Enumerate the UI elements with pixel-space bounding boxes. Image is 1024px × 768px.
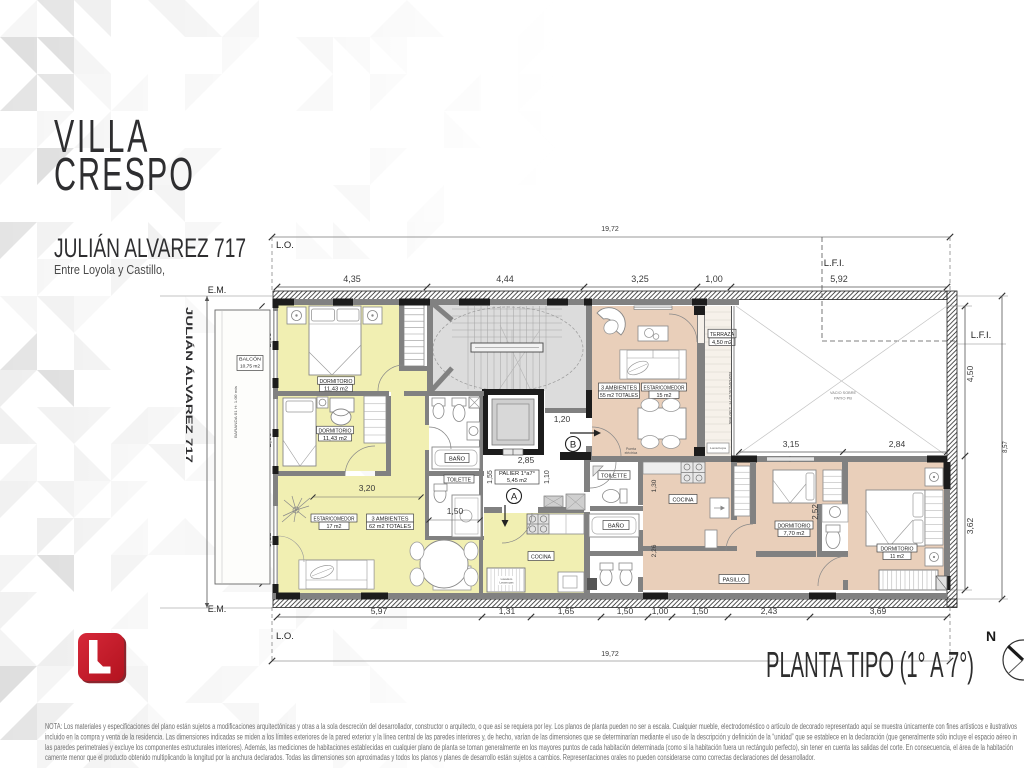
svg-text:DORMITORIO: DORMITORIO [319, 429, 352, 435]
svg-text:las paredes perimetrales y exc: las paredes perimetrales y excluye los c… [45, 743, 1013, 752]
svg-text:BALCÓN: BALCÓN [239, 357, 261, 362]
svg-text:COCINA: COCINA [673, 497, 695, 503]
svg-text:55 m2 TOTALES: 55 m2 TOTALES [600, 393, 639, 399]
svg-text:2,43: 2,43 [761, 606, 778, 616]
svg-text:1,50: 1,50 [692, 606, 709, 616]
svg-text:DORMITORIO: DORMITORIO [881, 547, 914, 553]
svg-text:10,75 m2: 10,75 m2 [240, 364, 261, 369]
svg-text:19,72: 19,72 [601, 651, 619, 658]
svg-text:B: B [570, 440, 576, 451]
svg-text:camente menor que el producto: camente menor que el producto obtenido m… [45, 753, 815, 762]
svg-text:Lavarropa: Lavarropa [710, 446, 726, 450]
svg-text:5,92: 5,92 [830, 274, 848, 284]
svg-text:PATIO PB: PATIO PB [834, 396, 852, 401]
svg-text:BAÑO: BAÑO [449, 455, 465, 462]
svg-text:1,65: 1,65 [558, 606, 575, 616]
svg-text:4,50: 4,50 [965, 365, 975, 382]
svg-text:Entre Loyola y Castillo,: Entre Loyola y Castillo, [54, 262, 165, 277]
svg-text:1,00: 1,00 [652, 606, 669, 616]
svg-text:2,84: 2,84 [889, 439, 906, 449]
svg-text:7,70 m2: 7,70 m2 [784, 531, 805, 537]
svg-text:L.F.I.: L.F.I. [971, 330, 992, 341]
svg-text:2,26: 2,26 [651, 544, 658, 557]
svg-text:1,20: 1,20 [554, 414, 571, 424]
svg-text:11,43 m2: 11,43 m2 [323, 436, 347, 442]
svg-text:4,50 m2: 4,50 m2 [712, 340, 732, 346]
svg-text:N: N [986, 628, 996, 644]
svg-text:VACIO SOBRE: VACIO SOBRE [830, 390, 856, 395]
svg-text:1,50: 1,50 [617, 606, 634, 616]
svg-text:incluido en la compra y venta: incluido en la compra y venta de la resi… [45, 732, 1017, 741]
svg-text:1,55: 1,55 [487, 470, 494, 484]
svg-text:BARANDA 02 H: 1.00 mts: BARANDA 02 H: 1.00 mts [728, 372, 732, 424]
svg-text:TOILETTE: TOILETTE [601, 474, 628, 480]
svg-text:3,20: 3,20 [359, 483, 376, 493]
svg-text:3 AMBIENTES: 3 AMBIENTES [372, 517, 410, 523]
svg-text:TOILETTE: TOILETTE [447, 477, 472, 483]
svg-text:BAÑO: BAÑO [608, 522, 624, 529]
svg-text:L.O.: L.O. [276, 631, 294, 642]
svg-text:4,44: 4,44 [496, 274, 514, 284]
svg-text:JULIÁN ÁLVAREZ 717: JULIÁN ÁLVAREZ 717 [184, 307, 194, 463]
svg-text:3,25: 3,25 [631, 274, 649, 284]
svg-text:PLANTA TIPO (1° A 7°): PLANTA TIPO (1° A 7°) [766, 644, 974, 685]
svg-text:BARANDA 01 H: 1.00 mts: BARANDA 01 H: 1.00 mts [234, 386, 238, 438]
svg-text:ESTAR/COMEDOR: ESTAR/COMEDOR [314, 517, 355, 523]
svg-text:E.M.: E.M. [208, 604, 227, 614]
svg-text:DORMITORIO: DORMITORIO [320, 379, 353, 385]
svg-text:5,97: 5,97 [371, 606, 388, 616]
svg-text:L.O.: L.O. [276, 240, 294, 251]
svg-text:E.M.: E.M. [208, 285, 227, 295]
svg-text:JULIÁN ALVAREZ 717: JULIÁN ALVAREZ 717 [54, 233, 246, 263]
svg-text:1,30: 1,30 [651, 479, 658, 492]
svg-text:DORMITORIO: DORMITORIO [778, 524, 811, 530]
svg-text:L.F.I.: L.F.I. [824, 258, 845, 269]
svg-text:CRESPO: CRESPO [54, 148, 195, 200]
svg-text:17 m2: 17 m2 [327, 524, 342, 530]
svg-text:1,50: 1,50 [447, 506, 464, 516]
svg-text:3,69: 3,69 [870, 606, 887, 616]
svg-text:2,52: 2,52 [811, 504, 820, 520]
svg-text:1,31: 1,31 [499, 606, 516, 616]
svg-text:PALIER 1°a7°: PALIER 1°a7° [499, 471, 535, 477]
svg-text:5,45 m2: 5,45 m2 [507, 478, 527, 484]
svg-text:eléctrica: eléctrica [625, 451, 638, 455]
svg-text:Lavarropas: Lavarropas [500, 581, 515, 585]
svg-text:2,85: 2,85 [518, 455, 535, 465]
svg-text:4,35: 4,35 [343, 274, 361, 284]
svg-text:PASILLO: PASILLO [723, 577, 746, 583]
svg-text:19,72: 19,72 [601, 226, 619, 233]
svg-text:COCINA: COCINA [531, 554, 552, 560]
svg-text:TERRAZA: TERRAZA [710, 332, 735, 338]
svg-text:1,00: 1,00 [705, 274, 723, 284]
svg-text:62 m2 TOTALES: 62 m2 TOTALES [369, 524, 412, 530]
svg-text:11 m2: 11 m2 [890, 554, 904, 560]
svg-text:8,57: 8,57 [1003, 441, 1009, 453]
svg-text:A: A [511, 492, 518, 503]
svg-text:11,43 m2: 11,43 m2 [324, 386, 348, 392]
svg-text:NOTA: Los materiales y especif: NOTA: Los materiales y especificaciones … [45, 722, 1017, 731]
svg-text:3,15: 3,15 [783, 439, 800, 449]
svg-text:3,62: 3,62 [965, 517, 975, 534]
svg-text:1,10: 1,10 [544, 470, 551, 484]
